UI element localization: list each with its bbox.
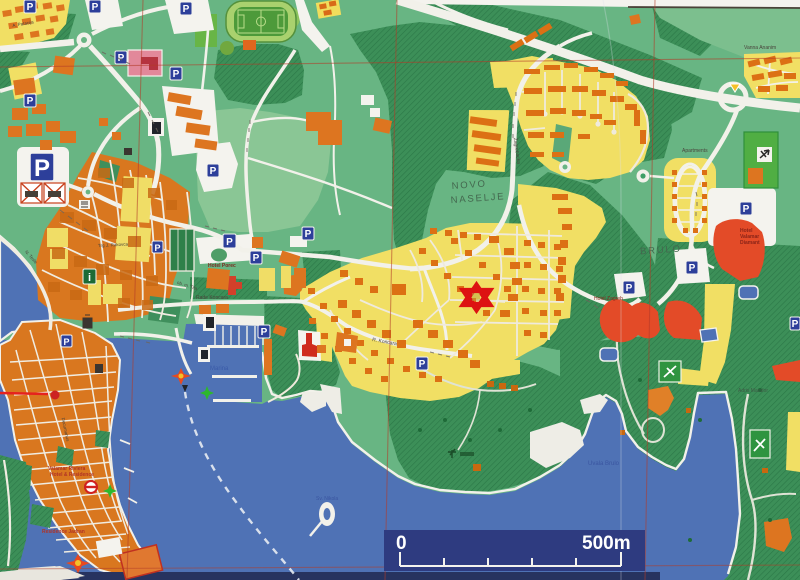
svg-text:P: P — [92, 2, 99, 13]
svg-text:Adris Marafor: Adris Marafor — [738, 388, 768, 394]
svg-text:P: P — [305, 229, 312, 240]
svg-text:Hotel & Residence: Hotel & Residence — [50, 472, 94, 478]
svg-text:Rade Koncara: Rade Koncara — [196, 295, 228, 301]
svg-text:P: P — [63, 337, 69, 347]
svg-text:P: P — [419, 359, 426, 370]
svg-text:Diamant: Diamant — [740, 240, 760, 246]
svg-text:P: P — [173, 69, 180, 80]
svg-text:P: P — [792, 319, 799, 330]
svg-text:0: 0 — [396, 533, 407, 554]
svg-text:P: P — [626, 283, 633, 294]
svg-text:P: P — [27, 2, 34, 13]
svg-text:Apartments: Apartments — [682, 148, 708, 154]
svg-text:P: P — [27, 96, 34, 107]
svg-text:P: P — [210, 166, 217, 177]
svg-text:P: P — [183, 4, 190, 15]
svg-text:P: P — [689, 263, 696, 274]
svg-text:Vanna Ananim: Vanna Ananim — [744, 45, 776, 51]
svg-text:P: P — [253, 253, 260, 264]
svg-text:P: P — [743, 204, 750, 215]
svg-text:P: P — [34, 155, 50, 182]
svg-text:500m: 500m — [582, 533, 631, 554]
svg-text:i: i — [88, 272, 91, 284]
svg-text:Hotel Zagreb: Hotel Zagreb — [594, 296, 623, 302]
svg-text:Residence Jadran: Residence Jadran — [42, 529, 85, 535]
svg-text:P: P — [261, 327, 268, 338]
svg-text:P: P — [154, 243, 160, 253]
svg-text:Sv. Nikola: Sv. Nikola — [316, 496, 338, 502]
svg-text:Hotel Porec: Hotel Porec — [208, 263, 236, 269]
svg-text:P: P — [226, 237, 233, 248]
svg-text:Marina: Marina — [210, 366, 229, 372]
svg-text:Uvala Brulo: Uvala Brulo — [588, 461, 620, 467]
